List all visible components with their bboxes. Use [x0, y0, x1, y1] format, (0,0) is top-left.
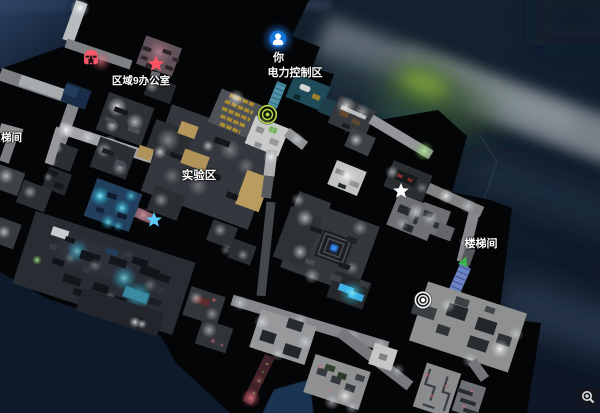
svg-text:你: 你 [272, 50, 284, 64]
svg-text:梯间: 梯间 [1, 131, 22, 144]
svg-text:区域9办公室: 区域9办公室 [112, 74, 171, 87]
svg-text:电力控制区: 电力控制区 [268, 65, 323, 79]
svg-text:楼梯间: 楼梯间 [465, 236, 498, 250]
svg-text:实验区: 实验区 [182, 168, 217, 182]
